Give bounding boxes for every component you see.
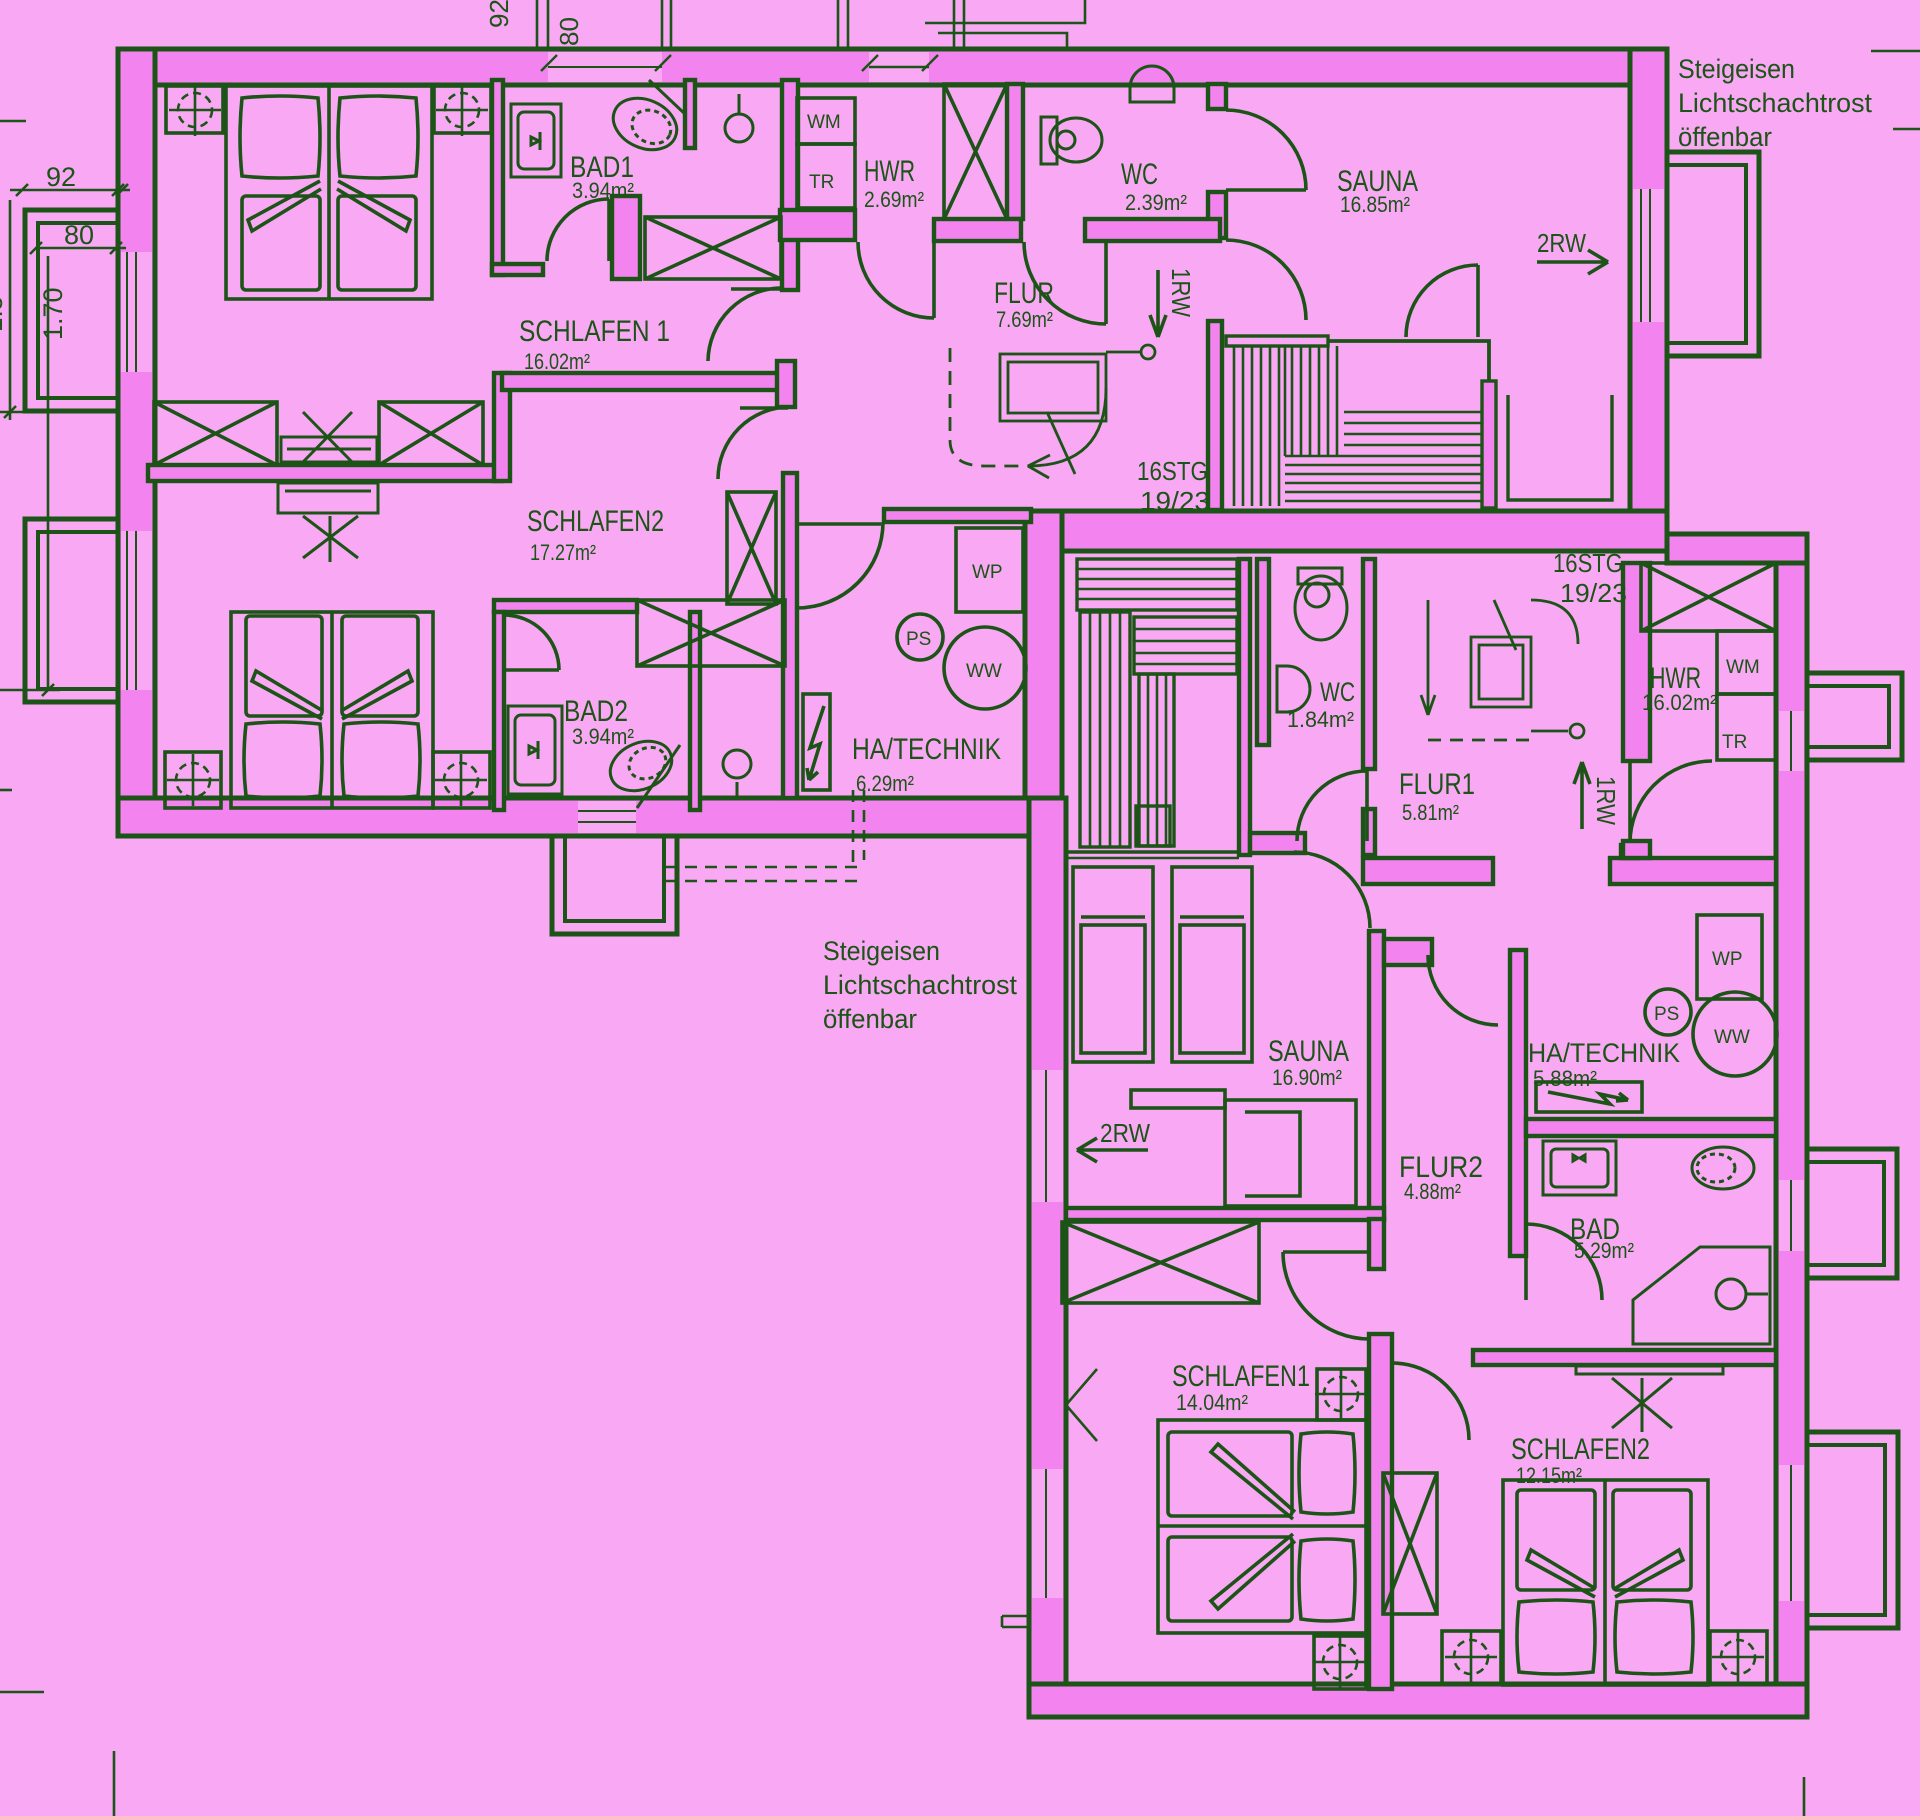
- svg-text:16.90m²: 16.90m²: [1272, 1065, 1342, 1090]
- svg-text:öffenbar: öffenbar: [823, 1004, 917, 1034]
- svg-text:TR: TR: [1722, 732, 1747, 753]
- svg-text:WP: WP: [972, 562, 1003, 583]
- svg-text:1.5: 1.5: [0, 296, 8, 332]
- svg-text:2.39m²: 2.39m²: [1125, 190, 1187, 215]
- svg-text:SAUNA: SAUNA: [1268, 1035, 1349, 1068]
- svg-text:TR: TR: [809, 172, 834, 193]
- svg-text:WM: WM: [1726, 657, 1760, 678]
- svg-text:SCHLAFEN2: SCHLAFEN2: [1511, 1433, 1650, 1466]
- svg-text:öffenbar: öffenbar: [1678, 122, 1772, 152]
- svg-text:5.88m²: 5.88m²: [1533, 1066, 1597, 1091]
- svg-text:HA/TECHNIK: HA/TECHNIK: [1528, 1038, 1680, 1068]
- svg-text:PS: PS: [1654, 1004, 1679, 1025]
- svg-text:2RW: 2RW: [1100, 1118, 1150, 1148]
- svg-text:Lichtschachtrost: Lichtschachtrost: [823, 970, 1017, 1000]
- svg-text:19/23: 19/23: [1560, 578, 1627, 608]
- svg-text:Steigeisen: Steigeisen: [1678, 54, 1795, 84]
- svg-text:WC: WC: [1320, 677, 1355, 707]
- svg-text:80: 80: [64, 220, 94, 250]
- svg-text:WC: WC: [1121, 158, 1158, 191]
- svg-text:4.88m²: 4.88m²: [1404, 1179, 1461, 1204]
- svg-text:16.02m²: 16.02m²: [1642, 690, 1717, 715]
- svg-text:WW: WW: [1714, 1027, 1750, 1048]
- svg-text:1.70: 1.70: [38, 287, 68, 340]
- svg-text:1.84m²: 1.84m²: [1287, 707, 1354, 732]
- svg-text:17.27m²: 17.27m²: [530, 540, 596, 565]
- svg-text:SCHLAFEN1: SCHLAFEN1: [1172, 1360, 1310, 1393]
- svg-text:16STG: 16STG: [1553, 548, 1623, 578]
- svg-text:92: 92: [484, 0, 514, 28]
- svg-text:2.69m²: 2.69m²: [864, 187, 924, 212]
- svg-text:WM: WM: [807, 112, 841, 133]
- svg-text:3.94m²: 3.94m²: [572, 724, 634, 749]
- svg-text:3.94m²: 3.94m²: [572, 178, 634, 203]
- svg-text:80: 80: [554, 17, 584, 46]
- svg-text:Lichtschachtrost: Lichtschachtrost: [1678, 88, 1872, 118]
- svg-text:12.15m²: 12.15m²: [1516, 1463, 1582, 1488]
- svg-text:1RW: 1RW: [1166, 268, 1196, 317]
- svg-text:FLUR: FLUR: [994, 277, 1054, 310]
- svg-text:5.29m²: 5.29m²: [1574, 1238, 1634, 1263]
- svg-text:16.02m²: 16.02m²: [524, 349, 590, 374]
- svg-text:HA/TECHNIK: HA/TECHNIK: [852, 733, 1001, 766]
- svg-text:SCHLAFEN2: SCHLAFEN2: [527, 505, 664, 538]
- svg-text:HWR: HWR: [864, 155, 915, 188]
- svg-text:SCHLAFEN 1: SCHLAFEN 1: [519, 315, 670, 348]
- svg-text:2RW: 2RW: [1537, 228, 1586, 258]
- svg-text:WP: WP: [1712, 949, 1743, 970]
- svg-text:1RW: 1RW: [1591, 776, 1621, 825]
- svg-text:PS: PS: [906, 629, 931, 650]
- svg-text:19/23: 19/23: [1140, 486, 1210, 516]
- svg-text:FLUR1: FLUR1: [1399, 768, 1475, 801]
- svg-text:Steigeisen: Steigeisen: [823, 936, 940, 966]
- svg-text:16.85m²: 16.85m²: [1340, 192, 1410, 217]
- svg-text:5.81m²: 5.81m²: [1402, 800, 1459, 825]
- svg-text:7.69m²: 7.69m²: [996, 307, 1053, 332]
- svg-text:WW: WW: [966, 661, 1002, 682]
- svg-text:92: 92: [46, 162, 76, 192]
- svg-text:6.29m²: 6.29m²: [856, 771, 914, 796]
- svg-text:16STG: 16STG: [1137, 456, 1208, 486]
- svg-text:14.04m²: 14.04m²: [1176, 1390, 1248, 1415]
